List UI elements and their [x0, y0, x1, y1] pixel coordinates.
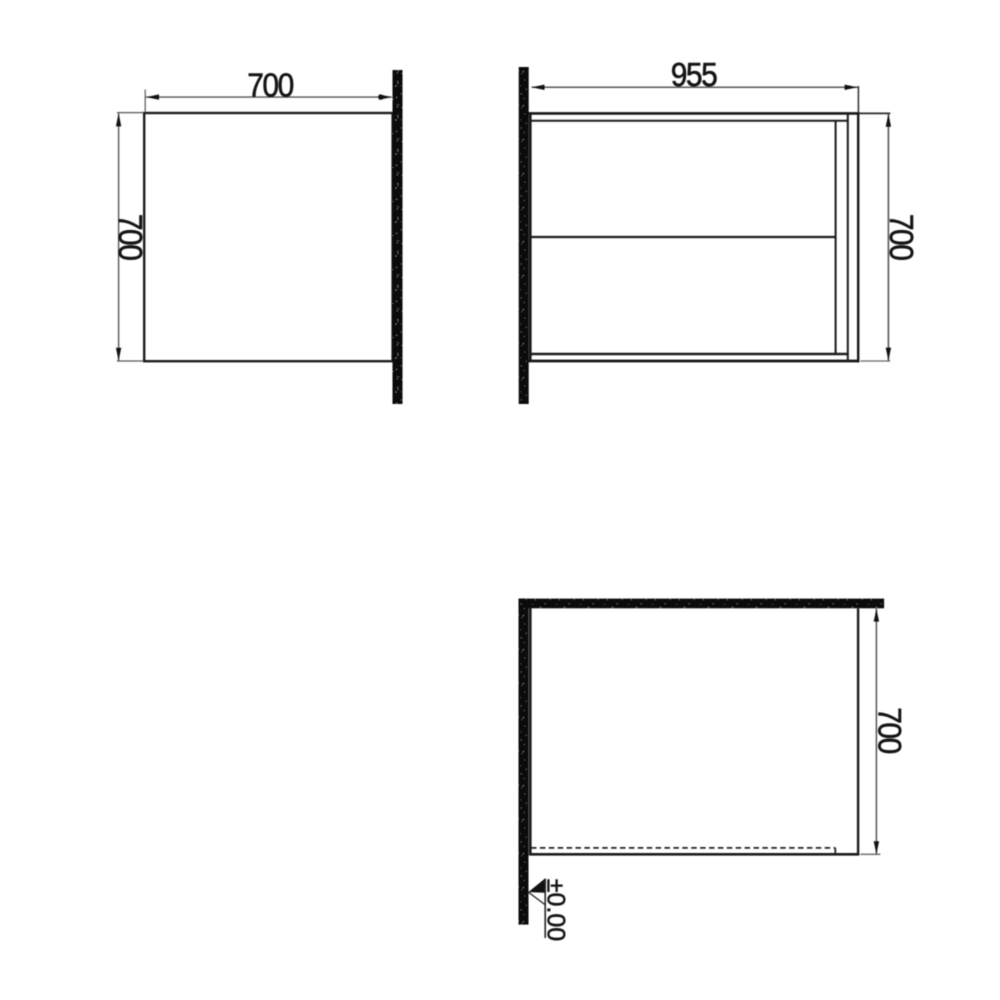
svg-text:700: 700	[871, 707, 907, 754]
svg-text:700: 700	[882, 214, 920, 260]
svg-text:±0.00: ±0.00	[542, 879, 570, 941]
svg-text:955: 955	[671, 56, 718, 94]
svg-text:700: 700	[247, 66, 294, 104]
svg-text:700: 700	[112, 214, 150, 260]
